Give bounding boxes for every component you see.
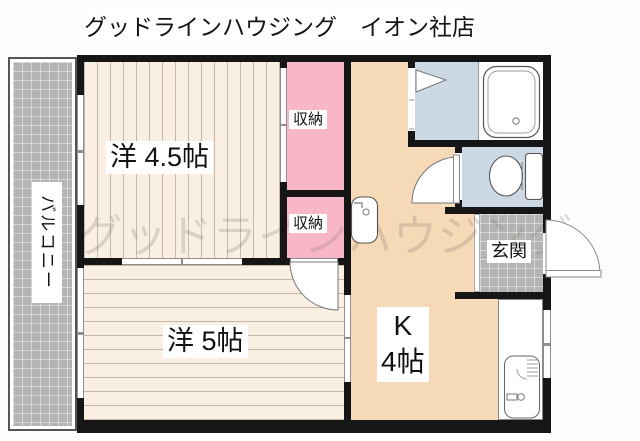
balcony-label: バルコニー bbox=[32, 182, 62, 303]
room-label-western-5: 洋 5帖 bbox=[163, 325, 248, 358]
closet-bottom-doorway bbox=[290, 258, 338, 265]
wall-entrance-top bbox=[445, 207, 550, 214]
door-handle-tick bbox=[181, 258, 183, 265]
kitchen-counter bbox=[498, 299, 543, 420]
page-title: グッドラインハウジング イオン社店 bbox=[84, 8, 475, 42]
window-mullion bbox=[77, 150, 84, 153]
bathtub-zone bbox=[478, 62, 544, 140]
front-door-leaf bbox=[546, 271, 601, 278]
toilet-doorway bbox=[455, 153, 462, 200]
room-label-western-4-5: 洋 4.5帖 bbox=[106, 141, 213, 174]
window-mullion bbox=[543, 343, 551, 346]
wall-bath-bottom bbox=[408, 140, 550, 147]
entrance-label: 玄関 bbox=[487, 240, 531, 263]
kitchen-label-size: 4帖 bbox=[381, 344, 425, 380]
closet-top-label: 収納 bbox=[289, 110, 327, 129]
wall-bottom bbox=[77, 420, 551, 433]
kitchen-label-type: K bbox=[381, 308, 425, 344]
front-doorway bbox=[543, 233, 551, 274]
floor-plan: グッドラインハウジング イオン社店 グッドラインハウジング bbox=[0, 0, 640, 441]
wall-closet-divider bbox=[280, 190, 351, 197]
wall-top bbox=[77, 55, 550, 62]
door-handle-tick bbox=[344, 337, 351, 339]
wall-entrance-bottom bbox=[455, 292, 550, 299]
closet-bottom-label: 収納 bbox=[289, 214, 327, 233]
window-mullion bbox=[77, 332, 84, 335]
kitchen-label: K 4帖 bbox=[377, 307, 429, 382]
bathroom-doorway bbox=[408, 68, 415, 131]
door-handle-tick bbox=[280, 124, 287, 126]
toilet-room-floor bbox=[462, 147, 543, 207]
